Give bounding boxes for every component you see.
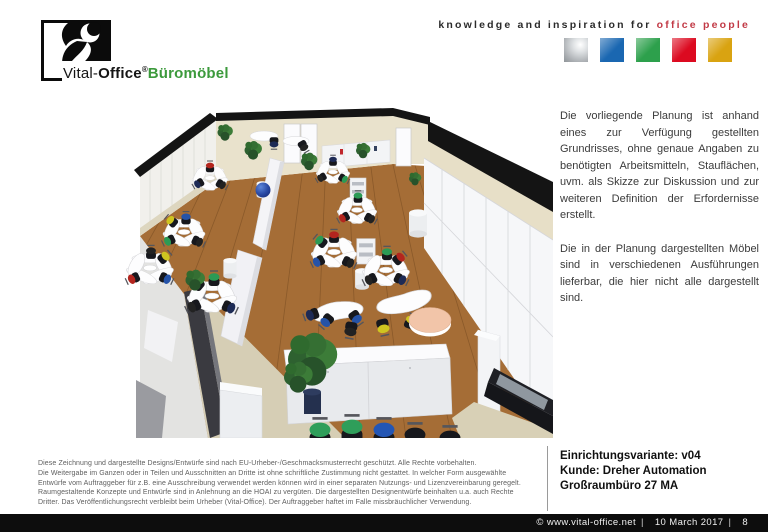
logo-wordmark: Vital-Office®Büromöbel (62, 61, 231, 83)
footer-separator: | (728, 517, 731, 528)
color-square-green (636, 38, 660, 62)
footer-separator: | (641, 517, 644, 528)
brand-suffix: Office (98, 65, 142, 82)
tagline-black: knowledge and inspiration for (438, 19, 651, 31)
footer-bar: © www.vital-office.net|10 March 2017|8 (0, 514, 768, 532)
footer-copyright: © www.vital-office.net (536, 517, 636, 528)
project-customer: Kunde: Dreher Automation (560, 464, 707, 479)
single-door (396, 128, 411, 166)
project-room: Großraumbüro 27 MA (560, 479, 707, 494)
legal-line: Die Weitergabe im Ganzen oder in Teilen … (38, 469, 550, 479)
legal-line: Diese Zeichnung und dargestellte Designs… (38, 459, 550, 469)
tagline: knowledge and inspiration for office peo… (438, 19, 750, 31)
footer-page-number: 8 (742, 517, 748, 528)
legal-line: Dritter. Das Veröffentlichungsrecht verb… (38, 498, 550, 508)
project-variant: Einrichtungsvariante: v04 (560, 449, 707, 464)
pedestal (223, 258, 236, 279)
brand-prefix: Vital- (63, 65, 98, 82)
description-paragraph-1: Die vorliegende Planung ist anhand eines… (560, 108, 759, 224)
color-square-blue (600, 38, 624, 62)
legal-line: Entwürfe vom Auftraggeber für z.B. eine … (38, 479, 550, 489)
footer-date: 10 March 2017 (655, 517, 724, 528)
brand-product: Büromöbel (148, 65, 229, 82)
color-square-red (672, 38, 696, 62)
far-wall-step (393, 108, 430, 166)
tagline-red: office people (657, 19, 750, 31)
description-text: Die vorliegende Planung ist anhand eines… (560, 108, 759, 324)
low-cabinet (220, 382, 262, 438)
peach-table (409, 308, 451, 337)
office-3d-rendering (112, 100, 553, 438)
desk-cluster (123, 245, 177, 286)
project-info: Einrichtungsvariante: v04 Kunde: Dreher … (560, 449, 707, 494)
vertical-divider (547, 446, 548, 511)
color-square-gold (708, 38, 732, 62)
legal-line: Raumgestaltende Konzepte und Entwürfe si… (38, 488, 550, 498)
exercise-ball (256, 183, 271, 198)
color-square-silver (564, 38, 588, 62)
description-paragraph-2: Die in der Planung dargestellten Möbel s… (560, 241, 759, 307)
pedestal (409, 209, 427, 237)
brand-color-squares (564, 38, 732, 62)
presentation-slide: Vital-Office®Büromöbel knowledge and ins… (0, 0, 768, 532)
legal-notice: Diese Zeichnung und dargestellte Designs… (38, 459, 550, 508)
